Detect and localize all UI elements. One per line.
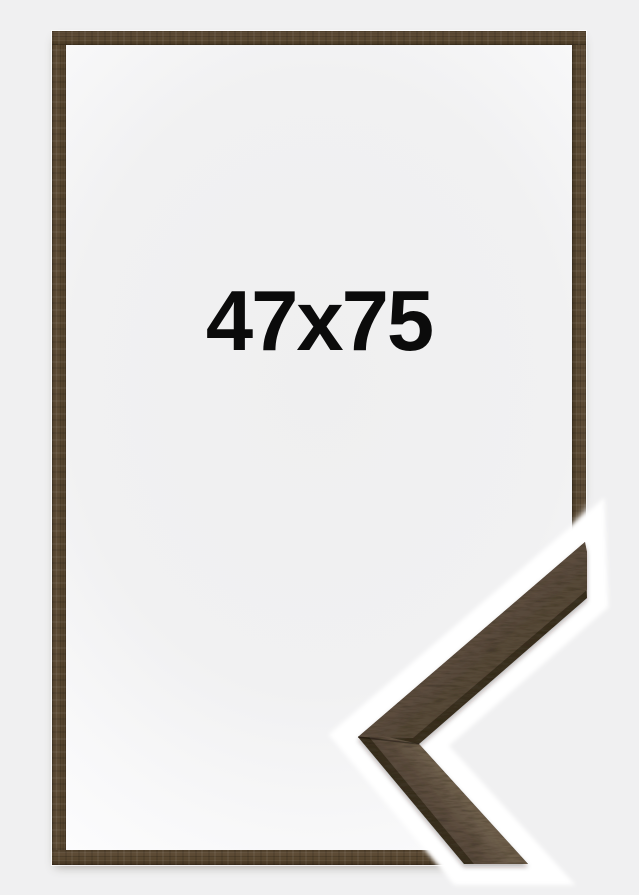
corner-sample-graphic (320, 430, 639, 895)
product-image: 47x75 (0, 0, 639, 895)
frame-border-left (52, 45, 66, 850)
size-label: 47x75 (52, 279, 586, 364)
frame-border-top (52, 31, 586, 45)
